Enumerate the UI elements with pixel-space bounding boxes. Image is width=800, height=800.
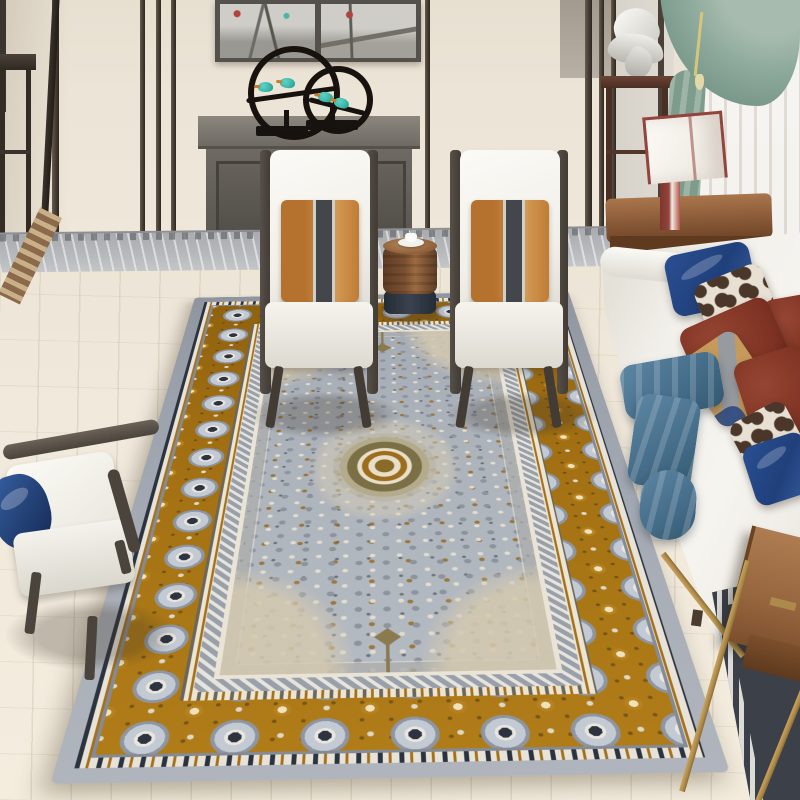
rug-pendant [374, 628, 401, 646]
curtain-tassel [695, 74, 704, 90]
chair-seat-cushion [455, 302, 563, 368]
pedestal-stand [601, 76, 675, 88]
table-lamp-base [660, 178, 680, 230]
rug-corner-spandrel [416, 564, 557, 671]
artwork-right-panel [321, 4, 416, 58]
table-lamp-shade [642, 111, 728, 185]
teal-bird-figurine [280, 77, 296, 89]
living-room-photo [0, 0, 800, 800]
chair-seat-cushion [265, 302, 373, 368]
orange-striped-pillow [471, 200, 549, 302]
wall-trim-strip [140, 0, 145, 238]
console-rail [0, 150, 30, 154]
shadow [448, 392, 598, 438]
wall-trim-strip [585, 0, 592, 238]
orange-striped-pillow [281, 200, 359, 302]
teal-bird-figurine [258, 82, 273, 92]
rug-corner-spandrel [220, 567, 357, 675]
left-console-table [0, 54, 36, 70]
wall-trim-strip [425, 0, 430, 238]
drum-side-table [383, 238, 437, 314]
wall-trim-strip [156, 0, 161, 238]
wall-trim-strip [599, 0, 604, 238]
teacup [405, 233, 417, 242]
wall-trim-strip [171, 0, 176, 238]
white-sculpture [608, 8, 670, 80]
console-leg [26, 70, 31, 242]
